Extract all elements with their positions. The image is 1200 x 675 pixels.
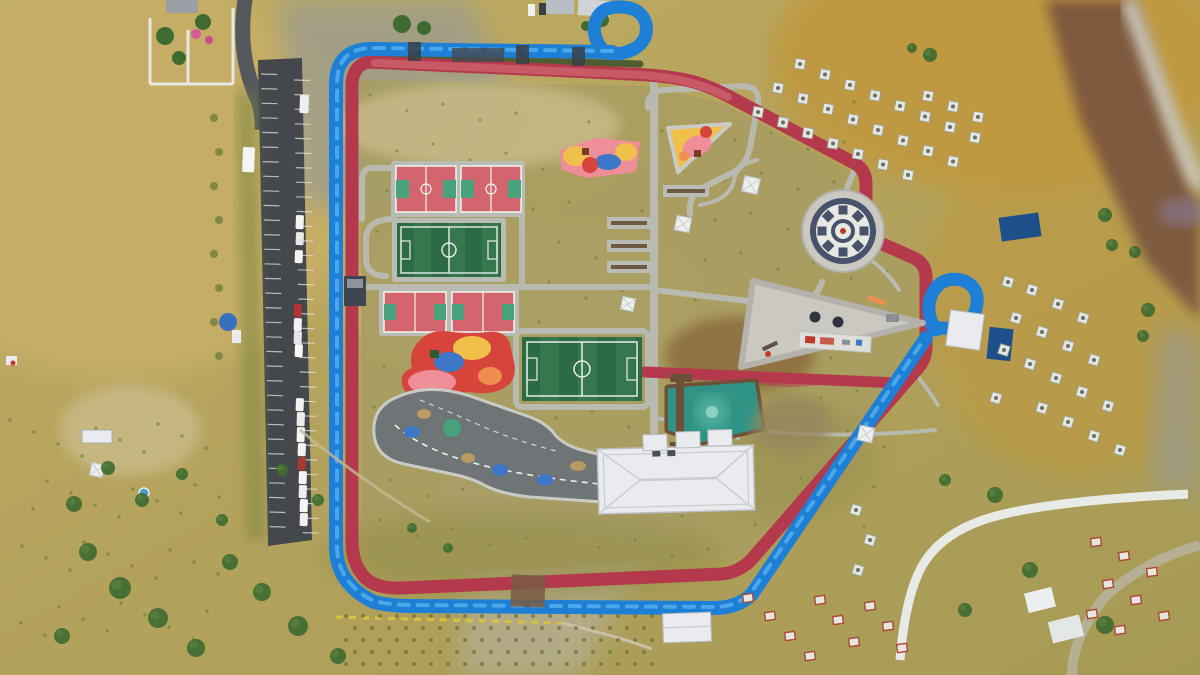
parked-vehicle	[297, 412, 305, 426]
sapling	[344, 662, 348, 666]
shrub	[167, 625, 171, 629]
sapling	[446, 614, 450, 618]
sapling	[616, 662, 620, 666]
shrub	[776, 267, 779, 270]
parking-stripe	[270, 527, 286, 528]
mural-mark	[856, 339, 862, 345]
picnic-table	[1118, 551, 1129, 560]
sapling	[650, 662, 654, 666]
canopy	[676, 431, 700, 448]
court-key	[396, 180, 409, 198]
shrub	[713, 218, 716, 221]
sapling	[531, 614, 535, 618]
planted-island	[417, 409, 431, 419]
tree-highlight	[444, 544, 449, 549]
parking-stripe	[269, 483, 285, 484]
parking-stripe	[268, 424, 284, 425]
sapling	[565, 614, 569, 618]
pergola-shade	[572, 47, 585, 66]
shrub	[8, 418, 12, 422]
table-top	[1086, 609, 1097, 618]
shrub	[547, 280, 550, 283]
shrub	[554, 416, 557, 419]
parking-stripe	[294, 95, 310, 96]
sapling	[650, 638, 654, 642]
parking-stripe	[298, 299, 314, 300]
sapling	[565, 638, 569, 642]
tree-highlight	[112, 580, 122, 590]
planter-pit	[923, 115, 927, 119]
court-key	[452, 304, 464, 320]
basketball-court	[384, 292, 446, 332]
tree	[172, 51, 186, 65]
shrub	[69, 491, 73, 495]
planter-pit	[781, 121, 785, 125]
bench	[667, 189, 705, 193]
picnic-table	[864, 601, 875, 610]
white-gazebo	[742, 176, 761, 195]
table-top	[1158, 611, 1169, 620]
tree-highlight	[1098, 618, 1106, 626]
court-key	[508, 180, 521, 198]
sapling	[497, 614, 501, 618]
picnic-table	[1158, 611, 1169, 620]
parking-stripe	[266, 337, 282, 338]
roundabout-island	[443, 419, 461, 437]
planter-pit	[868, 538, 872, 542]
sapling	[557, 650, 561, 654]
mural-mark	[820, 337, 834, 345]
basketball-court	[452, 292, 514, 332]
bench	[611, 265, 647, 269]
parking-stripe	[267, 410, 283, 411]
parking-stripe	[264, 220, 280, 221]
white-gazebo	[674, 215, 692, 233]
mosaic-center-dot	[840, 228, 846, 234]
planter-pit	[856, 152, 860, 156]
sapling	[361, 662, 365, 666]
bougainvillea	[205, 36, 213, 44]
parking-stripe	[269, 512, 285, 513]
tree-planter	[902, 169, 914, 181]
picnic-table	[804, 651, 815, 660]
planter-pit	[851, 118, 855, 122]
pond-fountain	[706, 406, 718, 418]
shrub	[405, 109, 408, 112]
tree-highlight	[255, 585, 263, 593]
shrub	[587, 120, 590, 123]
shrub	[32, 430, 36, 434]
planter-pit	[926, 94, 930, 98]
sapling	[582, 662, 586, 666]
shrub	[852, 100, 855, 103]
shrub	[57, 605, 61, 609]
sapling	[514, 662, 518, 666]
play-equipment	[582, 148, 589, 155]
tree-highlight	[314, 496, 319, 501]
white-gazebo	[857, 425, 875, 443]
parked-vehicle	[294, 304, 302, 317]
sapling	[523, 626, 527, 630]
sapling	[548, 638, 552, 642]
sapling	[591, 650, 595, 654]
basketball-court	[461, 166, 521, 212]
tree-planter	[752, 106, 764, 118]
table-top	[764, 611, 775, 620]
sapling	[599, 614, 603, 618]
sapling	[387, 650, 391, 654]
picnic-table	[1114, 625, 1125, 634]
sapling	[480, 662, 484, 666]
parking-stripe	[299, 357, 315, 358]
parking-stripe	[266, 322, 282, 323]
shrub	[504, 151, 507, 154]
picnic-table	[1102, 579, 1113, 588]
shrub	[855, 389, 858, 392]
parking-stripe	[264, 249, 280, 250]
shrub	[43, 633, 47, 637]
pale-dirt-patch	[60, 385, 200, 475]
tree-planter	[972, 111, 984, 123]
planter-pit	[1014, 316, 1018, 320]
sapling	[574, 650, 578, 654]
orange-zone	[478, 367, 502, 385]
table-top	[1118, 551, 1129, 560]
table-top	[1102, 579, 1113, 588]
sapling	[480, 638, 484, 642]
sapling	[514, 614, 518, 618]
play-item	[765, 351, 771, 357]
parked-vehicle	[296, 232, 304, 245]
tree-highlight	[925, 50, 931, 56]
sapling	[523, 650, 527, 654]
parking-stripe	[262, 118, 278, 119]
shrub	[799, 476, 802, 479]
table-top	[848, 637, 859, 646]
sapling	[378, 614, 382, 618]
planter-pit	[951, 160, 955, 164]
shrub	[19, 621, 23, 625]
sapling	[599, 638, 603, 642]
shrub	[44, 556, 48, 560]
parking-stripe	[261, 74, 277, 75]
play-equipment	[694, 150, 701, 157]
tree-highlight	[189, 641, 197, 649]
entrance-kiosk	[232, 330, 241, 343]
shrub	[131, 487, 135, 491]
planted-island	[461, 453, 475, 463]
parked-vehicle	[294, 318, 302, 331]
planter-pit	[1092, 358, 1096, 362]
tree-highlight	[1131, 248, 1136, 253]
wood-bridge-crossing	[510, 574, 545, 607]
roadside-bush	[210, 250, 218, 258]
shrub	[597, 545, 600, 548]
roadside-bush	[210, 114, 218, 122]
sapling	[625, 650, 629, 654]
entrance-kiosk-roof	[219, 313, 237, 331]
tree-highlight	[408, 524, 413, 529]
tree-planter	[847, 114, 859, 126]
shrub	[806, 147, 809, 150]
sapling	[395, 662, 399, 666]
shrub	[567, 200, 570, 203]
tree-planter	[872, 124, 884, 136]
planter-pit	[1006, 280, 1010, 284]
tree-highlight	[908, 44, 913, 49]
parking-stripe	[268, 454, 284, 455]
tree-highlight	[941, 476, 946, 481]
tree	[156, 27, 174, 45]
table-top	[784, 631, 795, 640]
planted-island	[570, 461, 586, 471]
picnic-table	[1090, 537, 1101, 546]
shrub	[514, 111, 517, 114]
tree-planter	[969, 132, 981, 144]
planter-pit	[901, 139, 905, 143]
tree-highlight	[81, 545, 89, 553]
shrub	[168, 548, 172, 552]
sapling	[540, 626, 544, 630]
parked-vehicle	[298, 443, 306, 456]
sapling	[344, 614, 348, 618]
shrub	[154, 576, 158, 580]
table-top	[1130, 595, 1141, 604]
parking-stripe	[295, 124, 311, 125]
parked-vehicle	[299, 471, 307, 484]
sapling	[446, 662, 450, 666]
ground-trampoline	[833, 317, 844, 328]
table-top	[1090, 537, 1101, 546]
planter-pit	[1040, 330, 1044, 334]
sapling	[438, 626, 442, 630]
tree-planter	[877, 159, 889, 171]
parking-stripe	[294, 80, 310, 81]
sapling	[497, 662, 501, 666]
roof-vent	[667, 450, 675, 456]
sapling	[412, 662, 416, 666]
pergola-shade	[516, 45, 529, 64]
picnic-table	[742, 593, 753, 602]
shrub	[829, 356, 832, 359]
tree-highlight	[989, 489, 996, 496]
shrub	[217, 495, 221, 499]
sapling	[489, 650, 493, 654]
sapling	[599, 662, 603, 666]
bench	[611, 244, 647, 248]
tree-highlight	[1024, 564, 1031, 571]
parked-vehicle	[300, 499, 308, 512]
tree-highlight	[1108, 241, 1113, 246]
shrub	[105, 629, 109, 633]
sapling	[472, 650, 476, 654]
shrub	[478, 118, 481, 121]
sapling	[353, 650, 357, 654]
shrub	[706, 547, 709, 550]
sapling	[361, 638, 365, 642]
tree-planter	[947, 101, 959, 113]
planter-pit	[1066, 344, 1070, 348]
shrub	[845, 429, 848, 432]
planter-pit	[776, 86, 780, 90]
mosaic-plaza: Circular mosaic plaza	[802, 190, 884, 272]
court-key	[461, 180, 474, 198]
tree-highlight	[1143, 305, 1149, 311]
parking-stripe	[298, 270, 314, 271]
parking-stripe	[297, 211, 313, 212]
parking-stripe	[269, 497, 285, 498]
parking-stripe	[296, 182, 312, 183]
shrub	[862, 525, 865, 528]
sapling	[497, 638, 501, 642]
parking-stripe	[295, 153, 311, 154]
parked-vehicle	[299, 95, 309, 113]
planter-pit	[926, 149, 930, 153]
parking-stripe	[265, 293, 281, 294]
tree-planter	[827, 138, 839, 150]
tree-planter	[797, 93, 809, 105]
sapling	[480, 614, 484, 618]
tree-highlight	[178, 470, 183, 475]
parking-stripe	[263, 162, 279, 163]
track-gate-roof	[347, 279, 363, 288]
sapling	[642, 626, 646, 630]
basketball-courts-lower: Two basketball courts	[379, 288, 519, 336]
parking-stripe	[267, 381, 283, 382]
roadside-bush	[215, 148, 223, 156]
parking-stripe	[303, 533, 319, 534]
roadside-bush	[210, 182, 218, 190]
tree	[393, 15, 411, 33]
sapling	[370, 650, 374, 654]
planter-pit	[801, 97, 805, 101]
parked-vehicle	[298, 457, 306, 470]
sapling	[574, 626, 578, 630]
planter-pit	[881, 163, 885, 167]
shrub	[385, 189, 388, 192]
planter-pit	[1002, 348, 1006, 352]
shrub	[378, 518, 381, 521]
shrub	[819, 396, 822, 399]
white-gazebo	[620, 296, 635, 311]
parking-stripe	[262, 147, 278, 148]
table-top	[882, 621, 893, 630]
shrub	[81, 617, 85, 621]
shrub	[179, 511, 183, 515]
table-top	[832, 615, 843, 624]
shrub	[488, 543, 491, 546]
shrub	[633, 538, 636, 541]
shrub	[660, 129, 663, 132]
sapling	[548, 614, 552, 618]
planter-pit	[1056, 302, 1060, 306]
parked-vehicle	[295, 250, 303, 263]
shrub	[143, 613, 147, 617]
tree-planter	[922, 145, 934, 157]
equipment	[886, 314, 899, 322]
picnic-table	[848, 637, 859, 646]
shrub	[640, 209, 643, 212]
tree-planter	[947, 156, 959, 168]
shrub	[670, 554, 673, 557]
parking-stripe	[263, 176, 279, 177]
shrub	[368, 93, 371, 96]
planter-pit	[856, 568, 860, 572]
parked-vehicle	[299, 485, 307, 498]
sapling	[463, 662, 467, 666]
parking-stripe	[266, 351, 282, 352]
shrub	[375, 229, 378, 232]
sapling	[344, 638, 348, 642]
parking-stripe	[261, 89, 277, 90]
planter-pit	[806, 131, 810, 135]
table-top	[1146, 567, 1157, 576]
tree-planter	[922, 90, 934, 102]
parking-stripe	[264, 235, 280, 236]
shrub	[216, 572, 220, 576]
car	[528, 4, 535, 16]
turf-stripes	[540, 337, 635, 401]
shrub	[204, 446, 208, 450]
planter-pit	[1080, 390, 1084, 394]
sapling	[412, 638, 416, 642]
shrub	[415, 534, 418, 537]
traffic-island	[537, 474, 553, 486]
sapling	[582, 614, 586, 618]
mosaic-tooth	[818, 227, 827, 236]
mosaic-tooth	[860, 227, 869, 236]
parking-stripe	[267, 395, 283, 396]
shrub	[192, 560, 196, 564]
shrub	[142, 450, 146, 454]
aerial-photo: Arid hillside terrain with terraced tree…	[0, 0, 1200, 675]
parking-stripe	[295, 138, 311, 139]
planter-pit	[898, 104, 902, 108]
sapling	[429, 614, 433, 618]
shrub	[531, 207, 534, 210]
sapling	[633, 638, 637, 642]
picnic-table	[882, 621, 893, 630]
shrub	[431, 142, 434, 145]
sapling	[616, 638, 620, 642]
tree-planter	[944, 121, 956, 133]
canopy	[643, 434, 667, 451]
sapling	[395, 638, 399, 642]
shrub	[849, 276, 852, 279]
planter-pit	[906, 173, 910, 177]
parking-stripe	[300, 387, 316, 388]
shrub	[680, 514, 683, 517]
sapling	[531, 662, 535, 666]
shrub	[441, 102, 444, 105]
shrub	[584, 296, 587, 299]
traffic-island	[492, 464, 508, 476]
tree-planter	[844, 79, 856, 91]
planter-pit	[848, 83, 852, 87]
planter-pit	[1030, 288, 1034, 292]
table-top	[814, 595, 825, 604]
sapling	[387, 626, 391, 630]
red-zone	[582, 157, 598, 173]
shrub	[524, 536, 527, 539]
shrub	[180, 434, 184, 438]
planter-pit	[756, 110, 760, 114]
table-top	[896, 643, 907, 652]
court-key	[384, 304, 396, 320]
tree-planter	[852, 148, 864, 160]
sapling	[582, 638, 586, 642]
shrub	[541, 167, 544, 170]
